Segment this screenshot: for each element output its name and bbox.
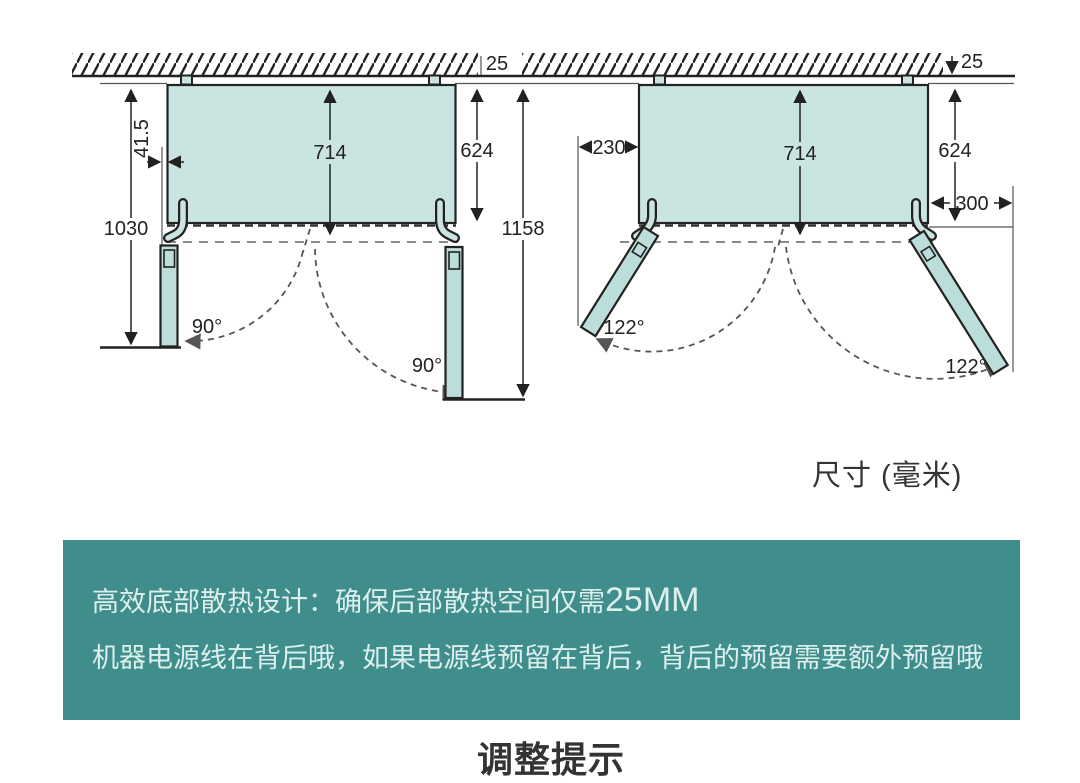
wall-spacer xyxy=(654,76,665,85)
angle-90-left: 90° xyxy=(192,316,222,338)
wall-hatching xyxy=(72,53,1015,84)
banner-line1-text: 高效底部散热设计：确保后部散热空间仅需 xyxy=(92,587,605,617)
angle-122-left: 122° xyxy=(603,317,644,339)
fridge-body xyxy=(168,85,456,223)
wall-spacer xyxy=(429,76,440,85)
dim-fridge-depth-left: 714 xyxy=(313,142,346,164)
banner-line2: 机器电源线在背后哦，如果电源线预留在背后，背后的预留需要额外预留哦 xyxy=(92,638,983,678)
left-door-open-90 xyxy=(161,246,178,347)
left-view-90deg: 25 41.5 1030 714 624 1158 90° 90° xyxy=(100,53,545,400)
right-door-open-90 xyxy=(446,247,463,398)
right-view-122deg: 25 230 300 714 624 122° 122° xyxy=(578,51,1013,379)
door-clearance-diagram: 25 41.5 1030 714 624 1158 90° 90° xyxy=(0,0,1080,520)
info-banner: 高效底部散热设计：确保后部散热空间仅需25MM 机器电源线在背后哦，如果电源线预… xyxy=(63,540,1020,720)
dim-side-clearance-230: 230 xyxy=(592,137,625,159)
banner-line1-highlight: 25MM xyxy=(605,581,699,619)
right-door-open-122 xyxy=(910,231,1008,374)
dim-cabinet-depth-left: 624 xyxy=(460,140,493,162)
dim-fridge-depth-right: 714 xyxy=(783,143,816,165)
angle-122-right: 122° xyxy=(945,356,986,378)
wall-spacer xyxy=(902,76,913,85)
banner-line1: 高效底部散热设计：确保后部散热空间仅需25MM xyxy=(92,580,699,622)
clipped-section-title: 调整提示 xyxy=(477,731,625,783)
dim-cabinet-depth-right: 624 xyxy=(938,140,971,162)
dim-back-clearance-right: 25 xyxy=(961,51,983,73)
dim-back-clearance-left: 25 xyxy=(486,53,508,75)
product-dimension-page: { "caption": { "text": "尺寸 (毫米)" }, "lef… xyxy=(0,0,1080,746)
wall-spacer xyxy=(181,76,192,85)
dim-depth-1030: 1030 xyxy=(104,218,149,240)
dim-depth-1158: 1158 xyxy=(501,218,544,240)
dim-side-clearance-300: 300 xyxy=(955,193,988,215)
angle-90-right: 90° xyxy=(412,355,442,377)
unit-caption: 尺寸 (毫米) xyxy=(812,452,962,494)
dim-hinge-gap: 41.5 xyxy=(131,119,153,158)
